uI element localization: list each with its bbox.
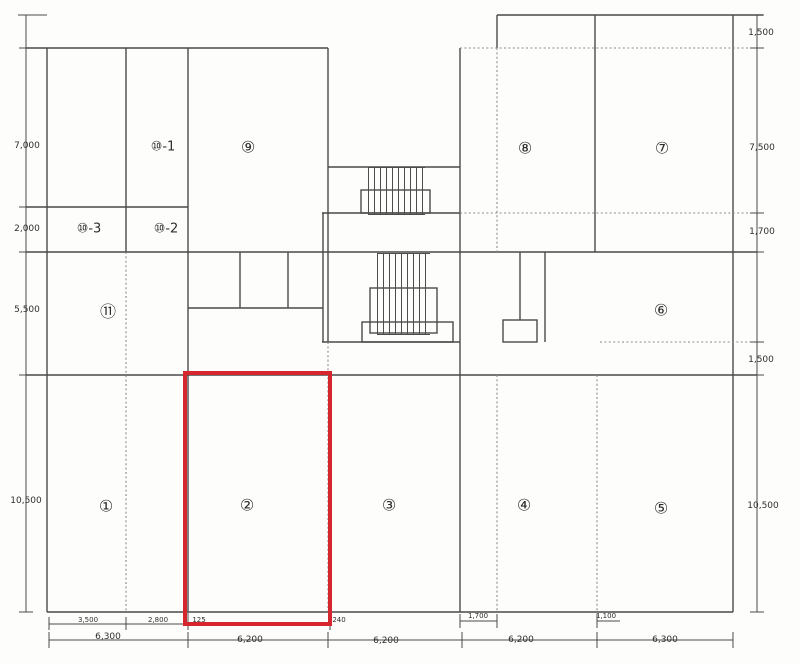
room-label-11: ⑪: [100, 298, 116, 322]
dimension-label-right: 1,500: [748, 28, 774, 38]
room-label-1: ①: [99, 497, 113, 516]
room-label-3: ③: [382, 496, 396, 515]
dimension-label-bottom-detail: 240: [332, 616, 345, 624]
dimension-label-left: 5,500: [14, 305, 40, 315]
dimension-label-bottom-main: 6,300: [95, 632, 121, 642]
dimension-label-left: 10,500: [10, 496, 42, 506]
room-label-10-1: ⑩-1: [151, 140, 176, 155]
room-label-2: ②: [240, 496, 254, 515]
stair-upper-hatch: [368, 167, 425, 215]
dimension-label-left: 2,000: [14, 224, 40, 234]
dimension-label-bottom-detail: 1,100: [596, 612, 616, 620]
stair-lower-hatch: [377, 253, 430, 335]
dimension-label-bottom-detail: 125: [192, 616, 205, 624]
dimension-label-bottom-detail: 2,800: [148, 616, 168, 624]
dimension-label-right: 1,700: [749, 227, 775, 237]
dimension-label-bottom-main: 6,200: [373, 636, 399, 646]
room-label-8: ⑧: [518, 139, 532, 158]
room-label-9: ⑨: [241, 138, 255, 157]
dimension-label-left: 7,000: [14, 141, 40, 151]
dimension-label-bottom-main: 6,300: [652, 635, 678, 645]
room-label-4: ④: [517, 496, 531, 515]
dimension-label-right: 1,500: [748, 355, 774, 365]
dimension-label-bottom-detail: 3,500: [78, 616, 98, 624]
room-label-5: ⑤: [654, 499, 668, 518]
highlight-room-2-box: [183, 371, 332, 626]
dimension-label-bottom-main: 6,200: [508, 635, 534, 645]
dimension-label-right: 7,500: [749, 143, 775, 153]
dimension-label-bottom-detail: 1,700: [468, 612, 488, 620]
floor-plan-drawing: ①②③④⑤⑥⑦⑧⑨⑩-1⑩-2⑩-3⑪ 7,0002,0005,50010,50…: [0, 0, 800, 665]
room-label-6: ⑥: [654, 301, 668, 320]
room-label-10-2: ⑩-2: [154, 222, 179, 237]
room-label-10-3: ⑩-3: [77, 222, 102, 237]
dimension-label-right: 10,500: [747, 501, 779, 511]
dimension-label-bottom-main: 6,200: [237, 635, 263, 645]
room-label-7: ⑦: [655, 139, 669, 158]
